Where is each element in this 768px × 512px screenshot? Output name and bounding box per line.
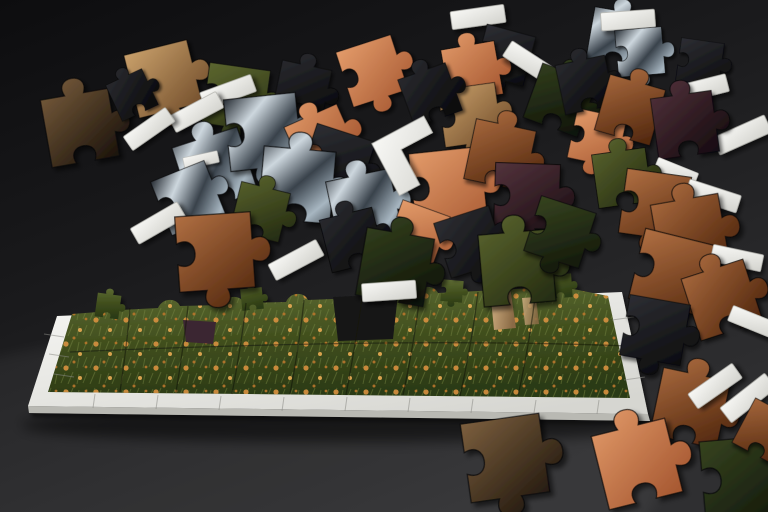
piece-back-shape xyxy=(361,280,416,302)
photo-stage xyxy=(0,0,768,512)
puzzle-piece-back-58 xyxy=(361,280,416,302)
dark-picture-patch xyxy=(183,320,216,344)
jigsaw-puzzle-photo xyxy=(0,0,768,512)
